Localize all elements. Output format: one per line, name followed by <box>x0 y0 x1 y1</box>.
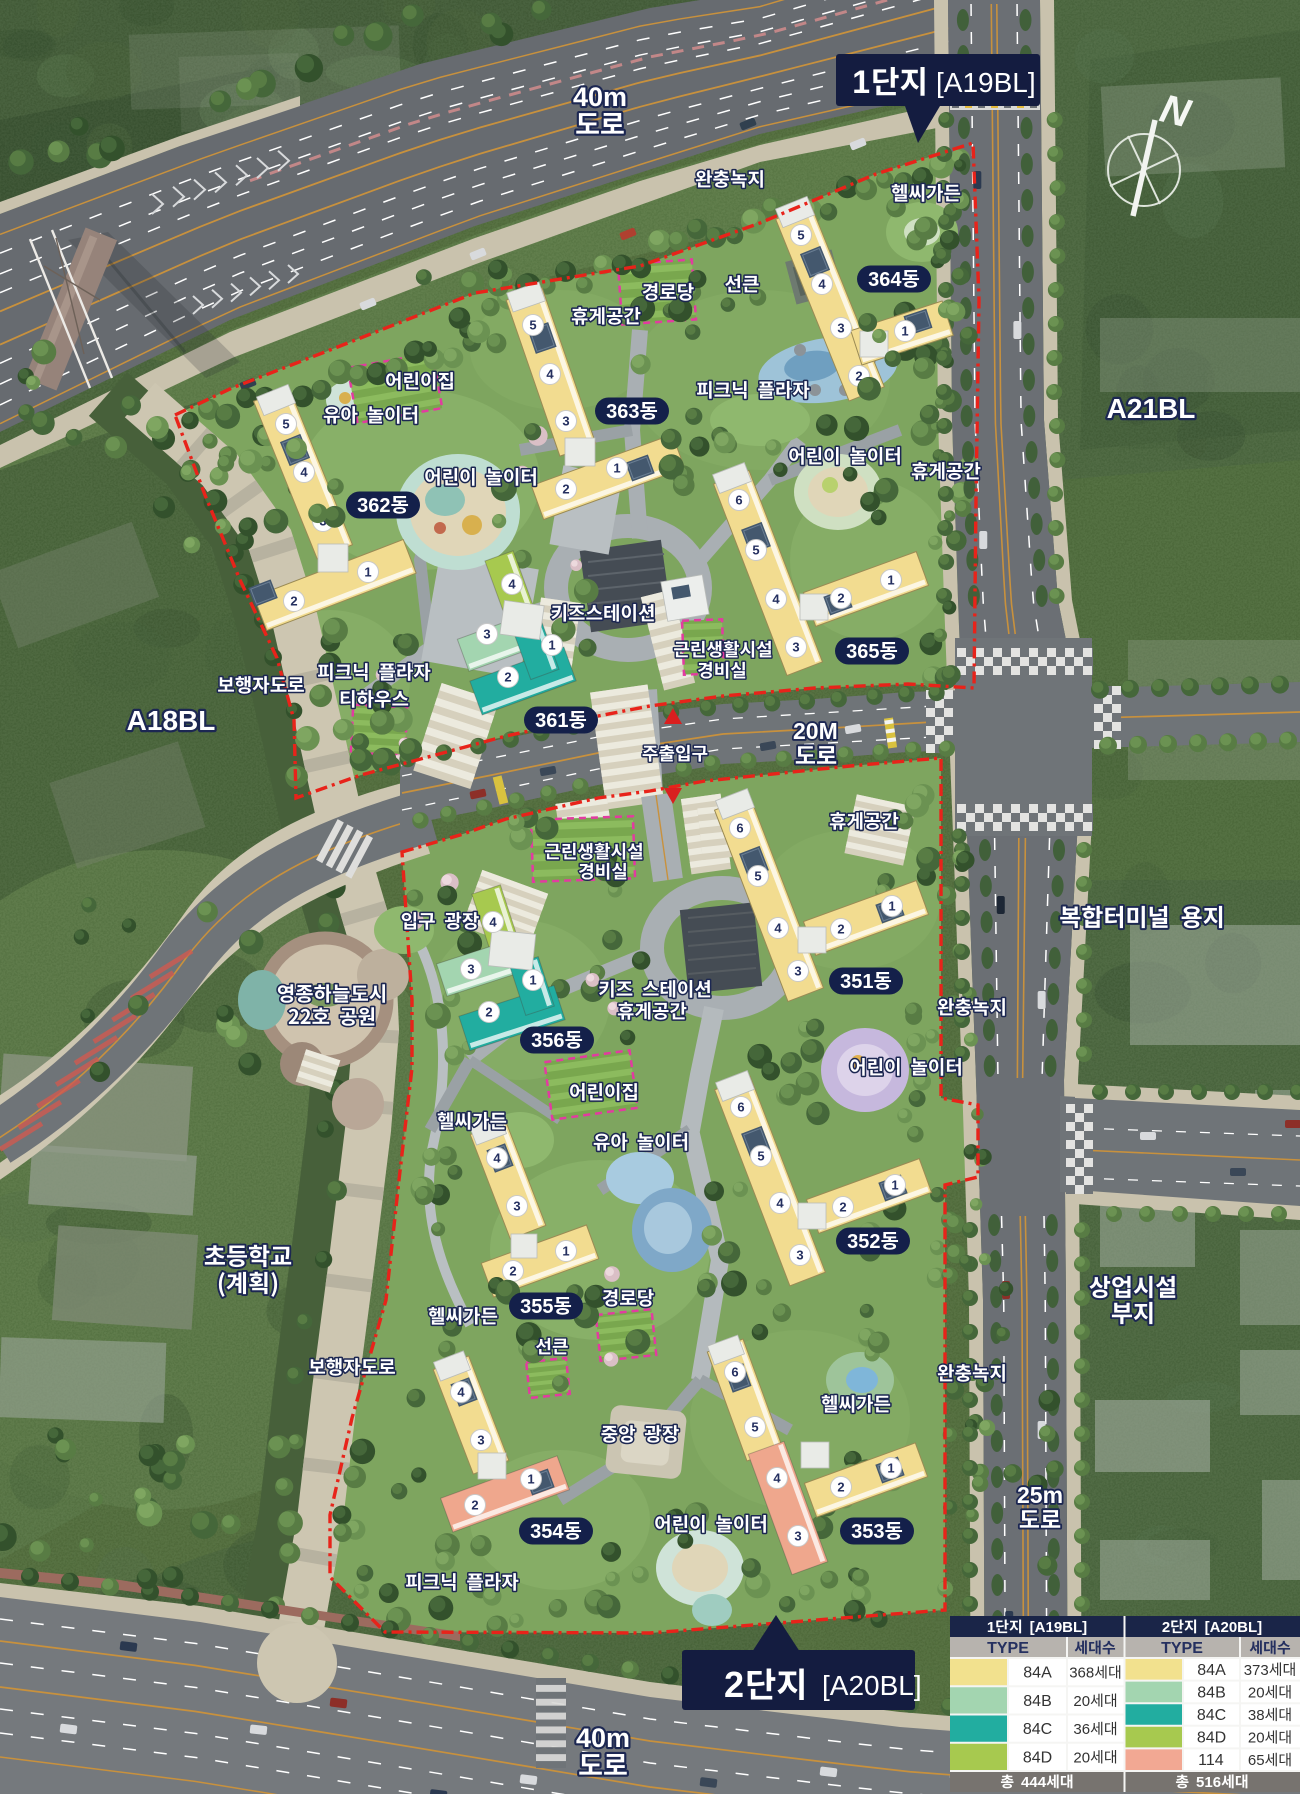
svg-text:5: 5 <box>797 228 804 243</box>
svg-text:368: 368 <box>1069 1665 1094 1682</box>
svg-text:6: 6 <box>735 493 742 508</box>
svg-text:40m: 40m <box>573 82 627 112</box>
svg-text:4: 4 <box>489 915 497 930</box>
svg-text:352: 352 <box>847 1231 880 1253</box>
svg-text:353: 353 <box>851 1521 884 1543</box>
svg-text:351: 351 <box>840 971 873 993</box>
svg-text:4: 4 <box>508 577 516 592</box>
svg-text:84B: 84B <box>1023 1693 1051 1710</box>
svg-text:84A: 84A <box>1023 1665 1052 1682</box>
svg-text:65: 65 <box>1248 1752 1265 1769</box>
svg-text:2: 2 <box>1162 1619 1170 1636</box>
svg-text:2: 2 <box>839 1200 846 1215</box>
svg-text:3: 3 <box>792 640 799 655</box>
svg-text:40m: 40m <box>576 1723 630 1753</box>
svg-text:1: 1 <box>527 1472 534 1487</box>
svg-text:2: 2 <box>837 1480 844 1495</box>
svg-text:2: 2 <box>290 594 297 609</box>
svg-text:3: 3 <box>562 414 569 429</box>
svg-text:3: 3 <box>483 627 490 642</box>
svg-text:1: 1 <box>613 461 620 476</box>
svg-text:20: 20 <box>1073 1749 1090 1766</box>
svg-text:3: 3 <box>513 1199 520 1214</box>
svg-text:20: 20 <box>1248 1684 1265 1701</box>
svg-text:1: 1 <box>852 64 870 100</box>
svg-text:3: 3 <box>467 962 474 977</box>
svg-text:20: 20 <box>1073 1693 1090 1710</box>
svg-text:3: 3 <box>477 1433 484 1448</box>
svg-text:1: 1 <box>887 1461 894 1476</box>
svg-text:355: 355 <box>520 1296 553 1318</box>
svg-text:2: 2 <box>509 1264 516 1279</box>
svg-text:A18BL: A18BL <box>127 705 216 736</box>
svg-text:5: 5 <box>751 1420 758 1435</box>
svg-text:4: 4 <box>493 1151 501 1166</box>
svg-text:1: 1 <box>901 324 908 339</box>
svg-text:38: 38 <box>1248 1707 1265 1724</box>
svg-text:1: 1 <box>891 1178 898 1193</box>
svg-text:1: 1 <box>987 1619 995 1636</box>
svg-text:2: 2 <box>485 1005 492 1020</box>
svg-text:84C: 84C <box>1197 1707 1226 1724</box>
svg-text:TYPE: TYPE <box>1161 1640 1203 1657</box>
svg-text:4: 4 <box>300 465 308 480</box>
svg-text:84B: 84B <box>1197 1684 1225 1701</box>
svg-text:2: 2 <box>562 482 569 497</box>
svg-text:3: 3 <box>837 321 844 336</box>
svg-text:361: 361 <box>535 710 568 732</box>
svg-text:4: 4 <box>773 1471 781 1486</box>
svg-text:[A19BL]: [A19BL] <box>1030 1619 1088 1636</box>
svg-text:1: 1 <box>888 899 895 914</box>
svg-text:4: 4 <box>546 367 554 382</box>
svg-text:84C: 84C <box>1023 1721 1052 1738</box>
svg-text:6: 6 <box>731 1365 738 1380</box>
svg-text:[A20BL]: [A20BL] <box>1205 1619 1263 1636</box>
svg-text:362: 362 <box>357 495 390 517</box>
svg-text:363: 363 <box>606 401 639 423</box>
svg-text:3: 3 <box>794 964 801 979</box>
svg-text:373: 373 <box>1244 1662 1269 1679</box>
svg-text:444: 444 <box>1021 1774 1047 1791</box>
svg-text:2: 2 <box>504 670 511 685</box>
svg-text:5: 5 <box>282 417 289 432</box>
svg-text:[A19BL]: [A19BL] <box>936 67 1036 98</box>
svg-text:5: 5 <box>754 869 761 884</box>
svg-text:TYPE: TYPE <box>987 1640 1029 1657</box>
svg-text:5: 5 <box>752 543 759 558</box>
svg-text:365: 365 <box>846 641 879 663</box>
svg-text:[A20BL]: [A20BL] <box>822 1670 922 1701</box>
svg-text:354: 354 <box>530 1521 564 1543</box>
svg-text:6: 6 <box>737 1100 744 1115</box>
svg-text:4: 4 <box>818 277 826 292</box>
svg-text:1: 1 <box>548 638 555 653</box>
svg-text:84D: 84D <box>1197 1730 1226 1747</box>
svg-text:1: 1 <box>562 1244 569 1259</box>
svg-text:84A: 84A <box>1197 1662 1226 1679</box>
svg-text:516: 516 <box>1196 1774 1221 1791</box>
svg-text:4: 4 <box>457 1385 465 1400</box>
svg-text:2: 2 <box>724 1664 744 1705</box>
svg-text:3: 3 <box>796 1248 803 1263</box>
svg-text:5: 5 <box>757 1149 764 1164</box>
svg-text:A21BL: A21BL <box>1107 393 1196 424</box>
svg-text:364: 364 <box>868 269 902 291</box>
svg-text:36: 36 <box>1073 1721 1090 1738</box>
svg-text:4: 4 <box>772 592 780 607</box>
svg-text:20: 20 <box>1248 1730 1265 1747</box>
svg-text:25m: 25m <box>1017 1482 1063 1508</box>
svg-text:20M: 20M <box>793 718 838 744</box>
svg-text:2: 2 <box>837 922 844 937</box>
svg-text:4: 4 <box>776 1196 784 1211</box>
svg-text:5: 5 <box>529 318 536 333</box>
svg-text:1: 1 <box>529 973 536 988</box>
svg-text:114: 114 <box>1198 1752 1224 1769</box>
svg-text:356: 356 <box>531 1030 564 1052</box>
svg-text:3: 3 <box>794 1529 801 1544</box>
svg-text:84D: 84D <box>1023 1749 1052 1766</box>
svg-text:1: 1 <box>887 573 894 588</box>
svg-text:4: 4 <box>774 921 782 936</box>
svg-text:2: 2 <box>837 591 844 606</box>
svg-text:2: 2 <box>471 1498 478 1513</box>
svg-text:1: 1 <box>364 565 371 580</box>
svg-text:6: 6 <box>736 821 743 836</box>
